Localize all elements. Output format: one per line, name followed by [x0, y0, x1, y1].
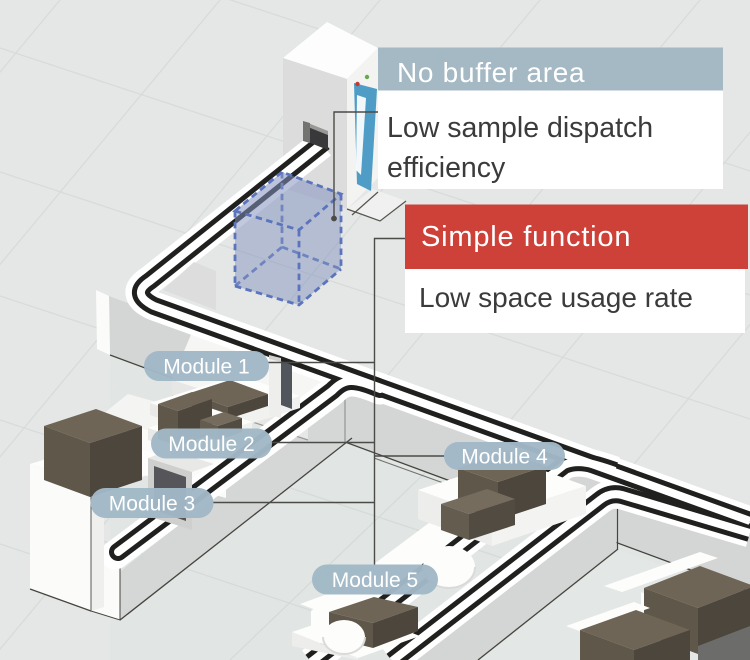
- svg-text:Module 2: Module 2: [168, 433, 254, 456]
- svg-text:Module 1: Module 1: [163, 356, 249, 379]
- svg-text:efficiency: efficiency: [387, 152, 506, 184]
- svg-text:Low sample dispatch: Low sample dispatch: [387, 112, 653, 144]
- svg-text:No buffer area: No buffer area: [397, 57, 585, 88]
- svg-text:Module 3: Module 3: [109, 493, 195, 516]
- svg-text:Low space usage rate: Low space usage rate: [419, 282, 693, 313]
- svg-text:Module 4: Module 4: [461, 446, 548, 469]
- svg-text:Simple function: Simple function: [421, 221, 631, 253]
- svg-text:Module 5: Module 5: [332, 569, 418, 592]
